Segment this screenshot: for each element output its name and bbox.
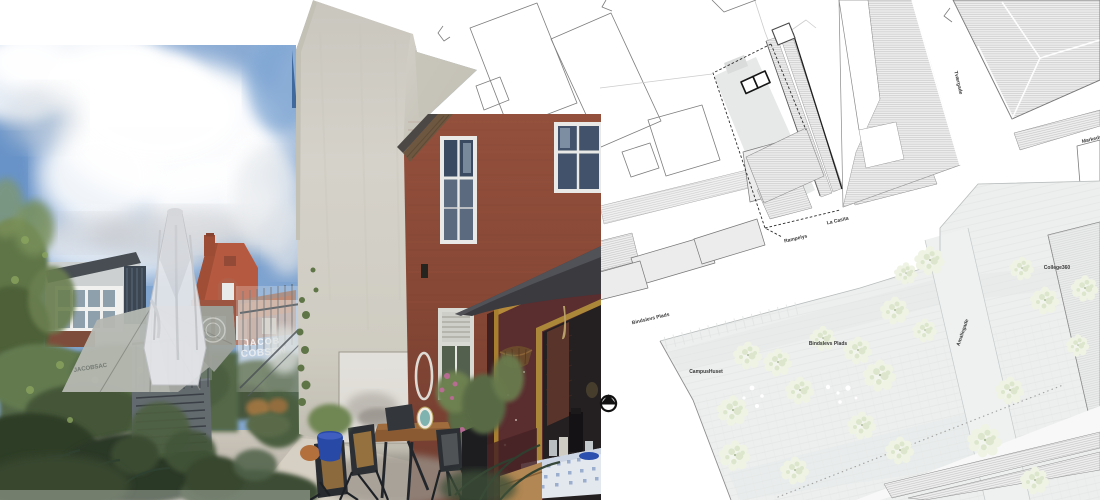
svg-text:Bindslevs Plads: Bindslevs Plads (809, 341, 848, 347)
svg-text:CampusHuset: CampusHuset (689, 369, 723, 375)
svg-text:College360: College360 (1044, 265, 1071, 271)
